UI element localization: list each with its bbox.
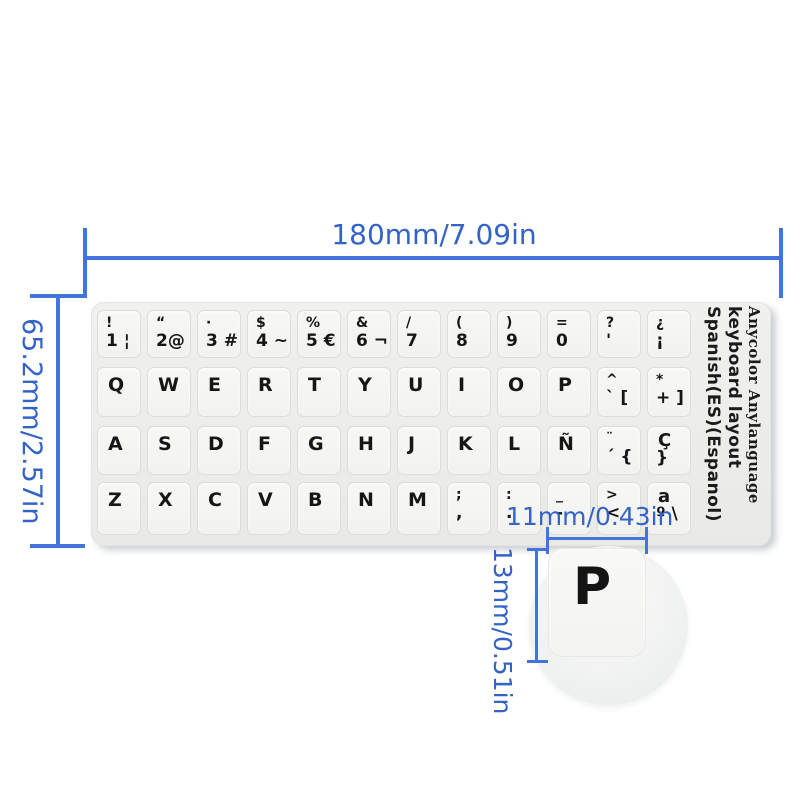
key: Y — [347, 367, 391, 417]
key-bottom-label: 1 ¦ — [98, 331, 140, 350]
key: M — [397, 482, 441, 535]
sticker-width-dimension-label: 180mm/7.09in — [85, 218, 783, 251]
key-top-label: * — [648, 368, 690, 388]
key-top-label: D — [198, 427, 240, 452]
width-dimension-left-cap — [83, 228, 87, 298]
key-top-label: T — [298, 368, 340, 393]
key-bottom-label: 8 — [448, 331, 490, 350]
width-dimension-right-cap — [779, 228, 783, 298]
key: “2@ — [147, 310, 191, 358]
key-top-label: ) — [498, 311, 540, 331]
width-dimension-line — [85, 256, 783, 260]
key: C — [197, 482, 241, 535]
key-top-label: a — [648, 483, 690, 504]
key-top-label: Y — [348, 368, 390, 393]
key-bottom-label: ¡ — [648, 331, 690, 350]
key: E — [197, 367, 241, 417]
key-bottom-label: 3 # — [198, 331, 240, 350]
key-height-dimension-top-cap — [527, 548, 548, 551]
key-bottom-label: 2@ — [148, 331, 190, 350]
key: D — [197, 426, 241, 475]
key-top-label: X — [148, 483, 190, 508]
key: A — [97, 426, 141, 475]
key: Ñ — [547, 426, 591, 475]
key: V — [247, 482, 291, 535]
key-top-label: A — [98, 427, 140, 452]
key-top-label: % — [298, 311, 340, 331]
key-bottom-label: 7 — [398, 331, 440, 350]
key-top-label: J — [398, 427, 440, 452]
key: N — [347, 482, 391, 535]
key: Ç} — [647, 426, 691, 475]
key: I — [447, 367, 491, 417]
key-top-label: U — [398, 368, 440, 393]
key: *+ ] — [647, 367, 691, 417]
key: S — [147, 426, 191, 475]
key-top-label: N — [348, 483, 390, 508]
key-top-label: _ — [548, 483, 590, 503]
key-row-3: ASDFGHJKLÑ¨´ {Ç} — [97, 426, 691, 475]
key-height-dimension-label: 13mm/0.51in — [488, 552, 517, 710]
key: ;, — [447, 482, 491, 535]
key-top-label: P — [548, 368, 590, 393]
height-dimension-bottom-cap — [30, 544, 85, 548]
key-top-label: M — [398, 483, 440, 508]
key-height-dimension-bottom-cap — [527, 660, 548, 663]
key-top-label: ( — [448, 311, 490, 331]
key-bottom-label: + ] — [648, 388, 690, 407]
key: !1 ¦ — [97, 310, 141, 358]
key-top-label: K — [448, 427, 490, 452]
key-top-label: > — [598, 483, 640, 503]
key: (8 — [447, 310, 491, 358]
product-diagram-page: { "dimensions": { "sticker_width_label":… — [0, 0, 800, 800]
key: Z — [97, 482, 141, 535]
key-width-dimension-line — [548, 537, 648, 540]
key: =0 — [547, 310, 591, 358]
sticker-height-dimension-label: 65.2mm/2.57in — [16, 295, 47, 548]
key: P — [547, 367, 591, 417]
key: K — [447, 426, 491, 475]
key-top-label: / — [398, 311, 440, 331]
key: T — [297, 367, 341, 417]
key-top-label: Ñ — [548, 427, 590, 452]
key: ?' — [597, 310, 641, 358]
key-top-label: ^ — [598, 368, 640, 388]
key-top-label: W — [148, 368, 190, 393]
key-bottom-label: ` [ — [598, 388, 640, 407]
key-top-label: F — [248, 427, 290, 452]
sticker-side-text: Spanish(ES)(Espanol) keyboard layout Any… — [702, 306, 764, 544]
key: F — [247, 426, 291, 475]
key: ¿¡ — [647, 310, 691, 358]
key-top-label: “ — [148, 311, 190, 331]
key: H — [347, 426, 391, 475]
key-top-label: = — [548, 311, 590, 331]
key: B — [297, 482, 341, 535]
key-top-label: Ç — [648, 427, 690, 448]
key: G — [297, 426, 341, 475]
key-top-label: ! — [98, 311, 140, 331]
key-row-2: QWERTYUIOP^` [*+ ] — [97, 367, 691, 417]
key: /7 — [397, 310, 441, 358]
key-top-label: V — [248, 483, 290, 508]
key: J — [397, 426, 441, 475]
key-width-dimension-label: 11mm/0.43in — [506, 502, 676, 531]
key: U — [397, 367, 441, 417]
key-top-label: ¿ — [648, 311, 690, 331]
key-width-dimension-right-cap — [645, 527, 648, 554]
key-top-label: ¨ — [598, 427, 640, 447]
key-top-label: B — [298, 483, 340, 508]
key-bottom-label: 9 — [498, 331, 540, 350]
key-bottom-label: ´ { — [598, 447, 640, 466]
key: &6 ¬ — [347, 310, 391, 358]
key-bottom-label: ' — [598, 331, 640, 350]
key-top-label: O — [498, 368, 540, 393]
key-top-label: H — [348, 427, 390, 452]
key-bottom-label: , — [448, 503, 490, 522]
key-top-label: : — [498, 483, 540, 503]
side-text-language: Spanish(ES)(Espanol) — [702, 306, 723, 544]
key-bottom-label: 6 ¬ — [348, 331, 390, 350]
key-top-label: Z — [98, 483, 140, 508]
key-top-label: ? — [598, 311, 640, 331]
key-bottom-label: 0 — [548, 331, 590, 350]
key: W — [147, 367, 191, 417]
height-dimension-line — [56, 295, 60, 548]
key-top-label: E — [198, 368, 240, 393]
key-height-dimension-line — [535, 548, 538, 663]
key-top-label: R — [248, 368, 290, 393]
key: R — [247, 367, 291, 417]
key-top-label: ; — [448, 483, 490, 503]
key-top-label: G — [298, 427, 340, 452]
side-text-layout: keyboard layout — [723, 306, 744, 544]
key-top-label: · — [198, 311, 240, 331]
key-top-label: Q — [98, 368, 140, 393]
key-top-label: L — [498, 427, 540, 452]
key: ^` [ — [597, 367, 641, 417]
key: %5 € — [297, 310, 341, 358]
key: ¨´ { — [597, 426, 641, 475]
key-row-1: !1 ¦“2@·3 #$4 ~%5 €&6 ¬/7(8)9=0?'¿¡ — [97, 310, 691, 358]
key: X — [147, 482, 191, 535]
key: $4 ~ — [247, 310, 291, 358]
key: ·3 # — [197, 310, 241, 358]
key-bottom-label: 5 € — [298, 331, 340, 350]
key: L — [497, 426, 541, 475]
magnified-key: P — [548, 548, 646, 657]
key-top-label: & — [348, 311, 390, 331]
height-dimension-top-cap — [30, 294, 85, 298]
key: )9 — [497, 310, 541, 358]
key-bottom-label: 4 ~ — [248, 331, 290, 350]
magnifier-circle: P — [529, 546, 688, 705]
key-top-label: I — [448, 368, 490, 393]
key-top-label: S — [148, 427, 190, 452]
key: O — [497, 367, 541, 417]
side-text-brand: Anycolor Anylanguage — [744, 306, 764, 544]
key-top-label: $ — [248, 311, 290, 331]
key-top-label: C — [198, 483, 240, 508]
key: Q — [97, 367, 141, 417]
magnified-key-label: P — [549, 549, 645, 613]
